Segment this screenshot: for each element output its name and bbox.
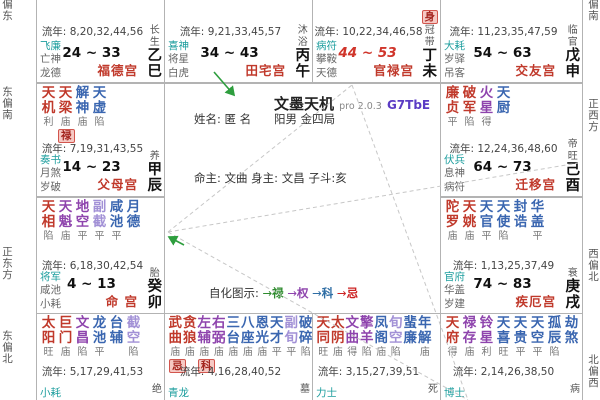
life-stage-char: 衰 bbox=[568, 268, 578, 280]
star: 文曲得 bbox=[345, 316, 360, 359]
stage-stem-column: 死 bbox=[428, 384, 438, 396]
stem-branch-char: 未 bbox=[423, 64, 438, 80]
side-label: 龙德 bbox=[40, 67, 61, 81]
star-brightness: 庙 bbox=[61, 346, 71, 359]
star-brightness: 旺 bbox=[44, 346, 54, 359]
star-char: 解 bbox=[76, 86, 90, 101]
star-char: 旬 bbox=[285, 331, 299, 346]
star-char: 罗 bbox=[446, 215, 460, 230]
stage-stem-column: 衰庚戌 bbox=[566, 268, 581, 312]
star-char: 光 bbox=[256, 331, 270, 346]
palace-cell-si[interactable]: 旺平旺旺平陷权飞廉亡神龙德流年: 8,20,32,44,5624 ~ 33福德宫… bbox=[36, 0, 165, 83]
star-brightness: 庙 bbox=[420, 346, 430, 359]
star-brightness: 平 bbox=[533, 230, 543, 243]
star-brightness: 利 bbox=[482, 346, 492, 359]
palace-name: 官禄宫 bbox=[373, 60, 414, 79]
star-char: 神 bbox=[76, 101, 90, 116]
direction-label: 正东方 bbox=[1, 246, 13, 281]
star-brightness: 陷 bbox=[78, 346, 88, 359]
side-label: 小耗 bbox=[40, 298, 61, 312]
star-char: 解 bbox=[418, 331, 432, 346]
star: 凤阁庙 bbox=[374, 316, 389, 359]
palace-name: 迁移宫 bbox=[515, 174, 556, 193]
star: 太阴庙 bbox=[331, 316, 346, 359]
life-stage-char: 病 bbox=[570, 384, 580, 396]
star-char: 阁 bbox=[375, 331, 389, 346]
life-stage-char: 浴 bbox=[298, 37, 308, 49]
star: 天机利 bbox=[40, 86, 57, 129]
stem-branch-char: 丙 bbox=[296, 48, 311, 64]
life-stage-char: 绝 bbox=[152, 384, 162, 396]
life-stage-char: 旺 bbox=[568, 151, 578, 163]
star-char: 月 bbox=[127, 200, 141, 215]
star-char: 龙 bbox=[93, 316, 107, 331]
shen-palace-badge: 身 bbox=[422, 10, 439, 24]
legend-item-label: 权 bbox=[297, 286, 309, 300]
liunian-years: 流年: 12,24,36,48,60 bbox=[441, 141, 566, 156]
star-char: 火 bbox=[480, 86, 494, 101]
star: 破军陷 bbox=[461, 86, 478, 129]
side-label: 白虎 bbox=[168, 67, 189, 81]
star-char: 狼 bbox=[183, 331, 197, 346]
liunian-years: 流年: 4,16,28,40,52 bbox=[165, 364, 296, 379]
star: 贪狼庙 bbox=[183, 316, 198, 359]
star-brightness: 庙 bbox=[465, 346, 475, 359]
star-brightness: 得 bbox=[482, 116, 492, 129]
life-stage-char: 临 bbox=[568, 25, 578, 37]
star-char: 天 bbox=[497, 86, 511, 101]
direction-label: 北偏西 bbox=[587, 354, 599, 389]
star: 三台庙 bbox=[226, 316, 241, 359]
star-char: 昌 bbox=[76, 331, 90, 346]
star-brightness: 旺 bbox=[318, 346, 328, 359]
profile-lords: 命主: 文曲 身主: 文昌 子斗:亥 bbox=[194, 170, 347, 186]
star-char: 副 bbox=[93, 200, 107, 215]
star-char: 截 bbox=[93, 215, 107, 230]
star-char: 天 bbox=[317, 316, 331, 331]
palace-cell-yin[interactable]: 太阳旺巨门庙文昌陷龙池平台辅 截空陷小耗流年: 5,17,29,41,53绝 bbox=[36, 313, 165, 400]
star-brightness: 庙 bbox=[448, 230, 458, 243]
side-label: 岁破 bbox=[40, 181, 61, 195]
liunian-years: 流年: 10,22,34,46,58 bbox=[313, 24, 424, 39]
star: 禄存庙 bbox=[461, 316, 478, 359]
star: 年解庙 bbox=[418, 316, 433, 359]
star-brightness: 平 bbox=[95, 346, 105, 359]
star-char: 同 bbox=[317, 331, 331, 346]
star-row: 天同旺太阴庙文曲得擎羊陷凤阁庙旬空陷蜚廉 年解庙 bbox=[316, 316, 432, 359]
star-char: 门 bbox=[59, 331, 73, 346]
stem-branch-char: 乙 bbox=[148, 48, 163, 64]
app-version: pro 2.0.3 bbox=[339, 101, 382, 112]
star: 天厨 bbox=[495, 86, 512, 129]
stem-branch-char: 卯 bbox=[148, 295, 163, 311]
direction-label: 东偏南 bbox=[1, 86, 13, 121]
star-brightness: 庙 bbox=[333, 346, 343, 359]
star-char: 旬 bbox=[389, 316, 403, 331]
legend-item: →权 bbox=[284, 286, 309, 300]
side-labels: 博士 bbox=[444, 387, 465, 400]
life-stage-char: 沐 bbox=[298, 25, 308, 37]
life-stage-char: 带 bbox=[425, 37, 435, 49]
side-label: 岁建 bbox=[444, 298, 465, 312]
star: 天相陷 bbox=[40, 200, 57, 243]
star: 地空平 bbox=[74, 200, 91, 243]
liunian-years: 流年: 11,23,35,47,59 bbox=[441, 24, 566, 39]
star: 天喜旺 bbox=[495, 316, 512, 359]
stem-branch-char: 庚 bbox=[566, 279, 581, 295]
legend-arrow-icon: → bbox=[333, 286, 346, 300]
star-brightness: 陷 bbox=[362, 346, 372, 359]
star-char: 姚 bbox=[463, 215, 477, 230]
star: 天使陷 bbox=[495, 200, 512, 243]
star-brightness: 庙 bbox=[243, 346, 253, 359]
star-char: 曲 bbox=[169, 331, 183, 346]
side-labels: 力士 bbox=[316, 387, 337, 400]
star-char: 截 bbox=[127, 316, 141, 331]
star-char: 禄 bbox=[463, 316, 477, 331]
star-row: 廉贞平破军陷火星得天厨 bbox=[444, 86, 512, 129]
star-char: 军 bbox=[463, 101, 477, 116]
star-char: 空 bbox=[76, 215, 90, 230]
star-brightness: 陷 bbox=[129, 346, 139, 359]
star-row: 天相陷天魁庙地空平副截平咸池平月德 bbox=[40, 200, 142, 243]
star-char: 擎 bbox=[360, 316, 374, 331]
legend-arrow-icon: → bbox=[308, 286, 321, 300]
ziwei-chart-app: 旺平旺旺平陷权飞廉亡神龙德流年: 8,20,32,44,5624 ~ 33福德宫… bbox=[0, 0, 600, 400]
star-char: 诰 bbox=[514, 215, 528, 230]
star-char: 存 bbox=[463, 331, 477, 346]
star-brightness: 庙 bbox=[78, 116, 88, 129]
star: 火星得 bbox=[478, 86, 495, 129]
star: 封诰 bbox=[512, 200, 529, 243]
star-row: 武曲庙贪狼庙左辅庙右弼庙三台庙八座庙恩光庙天才平副旬平破碎陷 bbox=[168, 316, 313, 359]
star-char: 座 bbox=[241, 331, 255, 346]
star: 武曲庙 bbox=[168, 316, 183, 359]
life-stage-char: 养 bbox=[150, 151, 160, 163]
star: 天才平 bbox=[270, 316, 285, 359]
star-brightness: 庙 bbox=[257, 346, 267, 359]
star: 太阳旺 bbox=[40, 316, 57, 359]
star-char: 喜 bbox=[497, 331, 511, 346]
star-char: 池 bbox=[110, 215, 124, 230]
decade-age-range: 74 ~ 83 bbox=[441, 276, 564, 292]
star-brightness: 平 bbox=[516, 346, 526, 359]
stem-branch-char: 己 bbox=[566, 162, 581, 178]
star: 旬空陷 bbox=[389, 316, 404, 359]
side-label: 力士 bbox=[316, 387, 337, 400]
palace-name: 命 宫 bbox=[106, 291, 138, 310]
star: 劫煞 bbox=[563, 316, 580, 359]
stage-stem-column: 临官戊申 bbox=[566, 25, 581, 80]
star-char: 厨 bbox=[497, 101, 511, 116]
life-stage-char: 死 bbox=[428, 384, 438, 396]
palace-cell-hai[interactable]: 天府得禄存庙铃星利天喜旺天贵平天空平孤辰陷劫煞 博士流年: 2,14,26,38… bbox=[440, 313, 583, 400]
star-char: 天 bbox=[480, 200, 494, 215]
star: 右弼庙 bbox=[212, 316, 227, 359]
star: 恩光庙 bbox=[255, 316, 270, 359]
life-stage-char: 冠 bbox=[425, 25, 435, 37]
star-row: 天府得禄存庙铃星利天喜旺天贵平天空平孤辰陷劫煞 bbox=[444, 316, 580, 359]
legend-arrow-icon: → bbox=[284, 286, 297, 300]
palace-cell-chou[interactable]: 武曲庙贪狼庙左辅庙右弼庙三台庙八座庙恩光庙天才平副旬平破碎陷忌科青龙流年: 4,… bbox=[164, 313, 313, 400]
star: 解神庙 bbox=[74, 86, 91, 129]
star: 破碎陷 bbox=[299, 316, 314, 359]
star: 副旬平 bbox=[284, 316, 299, 359]
star-brightness: 得 bbox=[448, 346, 458, 359]
stage-stem-column: 身冠带丁未 bbox=[422, 10, 439, 80]
palace-cell-wei[interactable]: 庙病符攀鞍天德流年: 10,22,34,46,5844 ~ 53官禄宫身冠带丁未 bbox=[312, 0, 441, 83]
app-code: G7TbE bbox=[387, 98, 430, 112]
life-stage-char: 墓 bbox=[300, 384, 310, 396]
star-brightness: 庙 bbox=[170, 346, 180, 359]
star-char: 辅 bbox=[198, 331, 212, 346]
star-char: 孤 bbox=[548, 316, 562, 331]
star: 天魁庙 bbox=[57, 200, 74, 243]
star: 文昌陷 bbox=[74, 316, 91, 359]
palace-name: 疾厄宫 bbox=[515, 291, 556, 310]
star: 孤辰陷 bbox=[546, 316, 563, 359]
legend-arrow-icon: → bbox=[259, 286, 272, 300]
life-stage-char: 帝 bbox=[568, 139, 578, 151]
star-char: 廉 bbox=[404, 331, 418, 346]
star-brightness: 庙 bbox=[185, 346, 195, 359]
palace-name: 福德宫 bbox=[97, 60, 138, 79]
star-char: 恩 bbox=[256, 316, 270, 331]
star-char: 才 bbox=[270, 331, 284, 346]
side-labels: 小耗 bbox=[40, 387, 61, 400]
direction-label: 西偏北 bbox=[587, 248, 599, 283]
side-labels: 青龙 bbox=[168, 387, 189, 400]
star: 八座庙 bbox=[241, 316, 256, 359]
star-char: 华 bbox=[531, 200, 545, 215]
palace-name: 交友宫 bbox=[515, 60, 556, 79]
star-char: 弼 bbox=[212, 331, 226, 346]
stage-stem-column: 病 bbox=[570, 384, 580, 396]
direction-label: 正西方 bbox=[587, 98, 599, 133]
star-char: 巨 bbox=[59, 316, 73, 331]
star-char: 阳 bbox=[42, 331, 56, 346]
star-char: 虚 bbox=[93, 101, 107, 116]
star-char: 梁 bbox=[59, 101, 73, 116]
decade-age-range: 44 ~ 53 bbox=[313, 45, 422, 61]
palace-cell-you[interactable]: 廉贞平破军陷火星得天厨 伏兵息神病符流年: 12,24,36,48,6064 ~… bbox=[440, 83, 583, 197]
star-char: 空 bbox=[389, 331, 403, 346]
stem-branch-char: 戊 bbox=[566, 48, 581, 64]
palace-cell-xu[interactable]: 陀罗庙天姚庙天官平天使陷封诰 华盖平官府华盖岁建流年: 1,13,25,37,4… bbox=[440, 197, 583, 314]
star-char: 池 bbox=[93, 331, 107, 346]
palace-cell-wu[interactable]: 平平喜神将星白虎流年: 9,21,33,45,5734 ~ 43田宅宫沐浴丙午 bbox=[164, 0, 313, 83]
star-char: 文 bbox=[346, 316, 360, 331]
legend-item: →禄 bbox=[259, 286, 284, 300]
star-char: 副 bbox=[285, 316, 299, 331]
star-brightness: 利 bbox=[44, 116, 54, 129]
legend-item-label: 忌 bbox=[347, 286, 359, 300]
liunian-years: 流年: 6,18,30,42,54 bbox=[37, 258, 148, 273]
star-char: 台 bbox=[110, 316, 124, 331]
star-char: 文 bbox=[76, 316, 90, 331]
star-char: 年 bbox=[418, 316, 432, 331]
stage-stem-column: 帝旺己酉 bbox=[566, 139, 581, 194]
star-char: 辅 bbox=[110, 331, 124, 346]
star: 巨门庙 bbox=[57, 316, 74, 359]
decade-age-range: 54 ~ 63 bbox=[441, 45, 564, 61]
liunian-years: 流年: 8,20,32,44,56 bbox=[37, 24, 148, 39]
star-char: 相 bbox=[42, 215, 56, 230]
star-char: 羊 bbox=[360, 331, 374, 346]
liunian-years: 流年: 9,21,33,45,57 bbox=[165, 24, 296, 39]
star-brightness: 陷 bbox=[465, 116, 475, 129]
star: 天府得 bbox=[444, 316, 461, 359]
stem-branch-char: 午 bbox=[296, 64, 311, 80]
star: 台辅 bbox=[108, 316, 125, 359]
liunian-years: 流年: 2,14,26,38,50 bbox=[441, 364, 566, 379]
star: 天官平 bbox=[478, 200, 495, 243]
liunian-years: 流年: 3,15,27,39,51 bbox=[313, 364, 424, 379]
stem-branch-char: 戌 bbox=[566, 295, 581, 311]
star-char: 贪 bbox=[183, 316, 197, 331]
star-char: 天 bbox=[270, 316, 284, 331]
stem-branch-char: 申 bbox=[566, 64, 581, 80]
star-brightness: 陷 bbox=[499, 230, 509, 243]
star-char: 八 bbox=[241, 316, 255, 331]
star-char: 天 bbox=[463, 200, 477, 215]
legend-item: →科 bbox=[308, 286, 333, 300]
star: 截空陷 bbox=[125, 316, 142, 359]
star-char: 碎 bbox=[299, 331, 313, 346]
star-char: 天 bbox=[42, 200, 56, 215]
star-char: 德 bbox=[127, 215, 141, 230]
legend-item-label: 科 bbox=[322, 286, 334, 300]
star-char: 星 bbox=[480, 101, 494, 116]
stem-branch-char: 癸 bbox=[148, 279, 163, 295]
life-stage-char: 长 bbox=[150, 25, 160, 37]
side-label: 博士 bbox=[444, 387, 465, 400]
liunian-years: 流年: 1,13,25,37,49 bbox=[441, 258, 566, 273]
star-char: 曲 bbox=[346, 331, 360, 346]
star-char: 太 bbox=[42, 316, 56, 331]
side-label: 小耗 bbox=[40, 387, 61, 400]
star-char: 机 bbox=[42, 101, 56, 116]
star-char: 天 bbox=[531, 316, 545, 331]
stage-stem-column: 胎癸卯 bbox=[148, 268, 163, 312]
star-char: 天 bbox=[93, 86, 107, 101]
star-char: 天 bbox=[497, 316, 511, 331]
star-brightness: 庙 bbox=[465, 230, 475, 243]
profile-name: 姓名: 匿 名 bbox=[194, 111, 251, 127]
star: 月德 bbox=[125, 200, 142, 243]
star-brightness: 平 bbox=[112, 230, 122, 243]
star-row: 太阳旺巨门庙文昌陷龙池平台辅 截空陷 bbox=[40, 316, 142, 359]
stage-stem-column: 沐浴丙午 bbox=[296, 25, 311, 80]
star-char: 煞 bbox=[565, 331, 579, 346]
decade-age-range: 64 ~ 73 bbox=[441, 159, 564, 175]
star-char: 右 bbox=[212, 316, 226, 331]
palace-cell-zi[interactable]: 天同旺太阴庙文曲得擎羊陷凤阁庙旬空陷蜚廉 年解庙力士流年: 3,15,27,39… bbox=[312, 313, 441, 400]
star-char: 劫 bbox=[565, 316, 579, 331]
star-char: 太 bbox=[331, 316, 345, 331]
star-char: 天 bbox=[514, 316, 528, 331]
legend-item-label: 禄 bbox=[272, 286, 284, 300]
stage-stem-column: 墓 bbox=[300, 384, 310, 396]
star-brightness: 平 bbox=[286, 346, 296, 359]
life-stage-char: 生 bbox=[150, 37, 160, 49]
star-char: 空 bbox=[127, 331, 141, 346]
star-char: 官 bbox=[480, 215, 494, 230]
star: 铃星利 bbox=[478, 316, 495, 359]
star-char: 魁 bbox=[59, 215, 73, 230]
liunian-years: 流年: 7,19,31,43,55 bbox=[37, 141, 148, 156]
decade-age-range: 24 ~ 33 bbox=[37, 45, 146, 61]
star-char: 天 bbox=[59, 86, 73, 101]
star-brightness: 庙 bbox=[214, 346, 224, 359]
star-char: 蜚 bbox=[404, 316, 418, 331]
star-brightness: 庙 bbox=[376, 346, 386, 359]
profile-kind: 阳男 金四局 bbox=[274, 111, 335, 127]
decade-age-range: 14 ~ 23 bbox=[37, 159, 146, 175]
stem-branch-char: 巳 bbox=[148, 64, 163, 80]
star-char: 左 bbox=[198, 316, 212, 331]
palace-cell-mao[interactable]: 天相陷天魁庙地空平副截平咸池平月德 将军咸池小耗流年: 6,18,30,42,5… bbox=[36, 197, 165, 314]
star-brightness: 平 bbox=[272, 346, 282, 359]
star: 蜚廉 bbox=[403, 316, 418, 359]
side-label: 青龙 bbox=[168, 387, 189, 400]
star-char: 贵 bbox=[514, 331, 528, 346]
star: 陀罗庙 bbox=[444, 200, 461, 243]
stem-branch-char: 丁 bbox=[423, 48, 438, 64]
side-label: 天德 bbox=[316, 67, 337, 81]
star: 天虚陷 bbox=[91, 86, 108, 129]
star-brightness: 平 bbox=[448, 116, 458, 129]
star-char: 天 bbox=[497, 200, 511, 215]
direction-label: 西偏南 bbox=[587, 0, 599, 22]
stage-stem-column: 绝 bbox=[152, 384, 162, 396]
star-char: 天 bbox=[42, 86, 56, 101]
side-label: 吊客 bbox=[444, 67, 465, 81]
palace-cell-chen[interactable]: 天机利天梁庙解神庙天虚陷禄奏书月煞岁破流年: 7,19,31,43,5514 ~… bbox=[36, 83, 165, 197]
palace-name: 父母宫 bbox=[97, 174, 138, 193]
stage-stem-column: 养甲辰 bbox=[148, 151, 163, 195]
star-brightness: 平 bbox=[78, 230, 88, 243]
palace-cell-shen[interactable]: 旺平 庙大耗岁驿吊客流年: 11,23,35,47,5954 ~ 63交友宫临官… bbox=[440, 0, 583, 83]
side-label: 病符 bbox=[444, 181, 465, 195]
life-stage-char: 官 bbox=[568, 37, 578, 49]
star-char: 台 bbox=[227, 331, 241, 346]
center-info-panel: 文墨天机 pro 2.0.3 G7TbE 姓名: 匿 名 阳男 金四局 命主: … bbox=[164, 83, 441, 314]
star-brightness: 平 bbox=[482, 230, 492, 243]
star-brightness: 得 bbox=[347, 346, 357, 359]
star-char: 咸 bbox=[110, 200, 124, 215]
star-char: 武 bbox=[169, 316, 183, 331]
star-brightness: 庙 bbox=[61, 116, 71, 129]
star: 咸池平 bbox=[108, 200, 125, 243]
star-brightness: 陷 bbox=[301, 346, 311, 359]
star: 左辅庙 bbox=[197, 316, 212, 359]
star-char: 地 bbox=[76, 200, 90, 215]
star-char: 贞 bbox=[446, 101, 460, 116]
star: 天姚庙 bbox=[461, 200, 478, 243]
stem-branch-char: 辰 bbox=[148, 178, 163, 194]
star-brightness: 陷 bbox=[95, 116, 105, 129]
star-char: 天 bbox=[446, 316, 460, 331]
star-char: 破 bbox=[463, 86, 477, 101]
star-char: 破 bbox=[299, 316, 313, 331]
star: 华盖平 bbox=[529, 200, 546, 243]
legend-label: 自化图示: bbox=[209, 286, 259, 300]
star: 天贵平 bbox=[512, 316, 529, 359]
decade-age-range: 34 ~ 43 bbox=[165, 45, 294, 61]
star-char: 盖 bbox=[531, 215, 545, 230]
star: 天空平 bbox=[529, 316, 546, 359]
